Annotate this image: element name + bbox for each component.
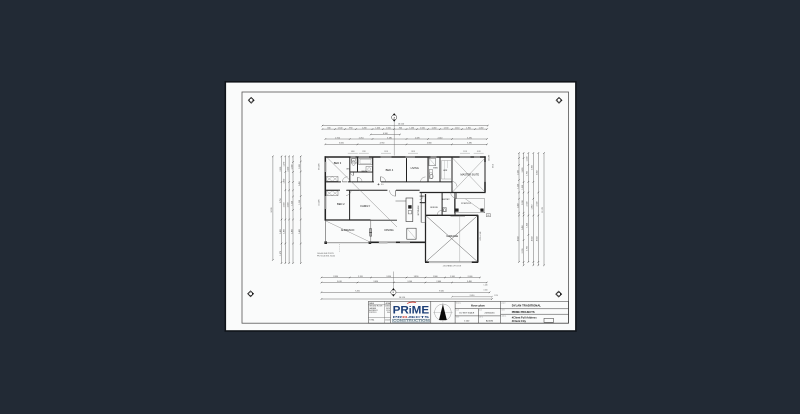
svg-text:1.200: 1.200: [527, 157, 529, 162]
svg-text:CONSTRUCTION: CONSTRUCTION: [393, 320, 429, 323]
svg-text:PRIME PROJECTS: PRIME PROJECTS: [512, 310, 535, 314]
svg-text:2.300: 2.300: [527, 202, 529, 207]
svg-text:GROUND FLOOR: GROUND FLOOR: [369, 306, 383, 308]
svg-text:4.650 x 5.430: 4.650 x 5.430: [480, 231, 482, 240]
svg-text:3.060: 3.060: [339, 143, 344, 145]
svg-text:DINING: DINING: [385, 228, 394, 232]
svg-text:3.140: 3.140: [407, 281, 412, 283]
svg-text:OFFICE: OFFICE: [430, 207, 439, 209]
svg-text:3.950: 3.950: [537, 170, 539, 175]
svg-text:1218: 1218: [362, 151, 366, 153]
svg-text:1818: 1818: [411, 151, 415, 153]
svg-text:2.920: 2.920: [287, 203, 289, 208]
svg-text:3.40: 3.40: [387, 312, 390, 314]
svg-text:0906: 0906: [351, 151, 355, 153]
svg-text:FFL 94.540 NGL 94.240: FFL 94.540 NGL 94.240: [317, 255, 335, 257]
svg-text:FAMILY: FAMILY: [361, 204, 371, 208]
svg-text:7.200: 7.200: [355, 291, 360, 293]
svg-text:4.760: 4.760: [380, 143, 385, 145]
svg-text:.940: .940: [398, 127, 402, 129]
svg-text:0.610: 0.610: [484, 290, 488, 292]
svg-text:3.470: 3.470: [467, 137, 472, 139]
svg-text:1.910: 1.910: [335, 137, 340, 139]
svg-text:4.650: 4.650: [517, 236, 519, 241]
svg-text:16.510: 16.510: [398, 124, 405, 126]
svg-text:1.500: 1.500: [517, 170, 519, 175]
svg-text:1.700: 1.700: [527, 171, 529, 176]
svg-text:MASTER SUITE: MASTER SUITE: [461, 174, 480, 177]
svg-text:ENTRY: ENTRY: [442, 199, 450, 201]
svg-text:1518: 1518: [384, 151, 388, 153]
svg-text:210.05: 210.05: [385, 320, 390, 322]
svg-text:2.700: 2.700: [527, 246, 529, 251]
svg-text:ALFRESCO: ALFRESCO: [341, 229, 355, 232]
svg-text:1.250: 1.250: [517, 184, 519, 189]
svg-text:2.400: 2.400: [280, 229, 282, 234]
svg-text:0918: 0918: [493, 164, 495, 168]
svg-text:LIVING: LIVING: [411, 167, 419, 170]
svg-text:158.35: 158.35: [385, 306, 390, 308]
svg-text:1.230: 1.230: [409, 127, 414, 129]
svg-text:1.050: 1.050: [420, 127, 425, 129]
svg-text:1.960: 1.960: [433, 276, 438, 278]
svg-text:1.970: 1.970: [280, 251, 282, 256]
svg-text:.940: .940: [327, 127, 331, 129]
svg-text:2.410: 2.410: [438, 137, 443, 139]
svg-text:1.250: 1.250: [299, 200, 301, 205]
svg-text:2.400: 2.400: [299, 229, 301, 234]
svg-text:1.000: 1.000: [299, 164, 301, 169]
svg-text:9.100: 9.100: [271, 208, 273, 213]
svg-text:4.650: 4.650: [537, 236, 539, 241]
svg-text:2.400: 2.400: [522, 168, 524, 173]
svg-text:#Client Full Address: #Client Full Address: [512, 315, 538, 319]
svg-text:4.100: 4.100: [383, 133, 388, 135]
svg-text:A01084: A01084: [486, 319, 494, 322]
svg-text:1.100: 1.100: [338, 127, 343, 129]
svg-text:2.300: 2.300: [537, 202, 539, 207]
svg-text:1:100: 1:100: [464, 320, 470, 322]
svg-text:16.510: 16.510: [399, 297, 406, 299]
svg-text:floor plan: floor plan: [471, 304, 485, 308]
svg-text:DO NOT SCALE: DO NOT SCALE: [459, 312, 475, 315]
svg-text:1.450: 1.450: [375, 127, 380, 129]
svg-text:3.610: 3.610: [337, 281, 342, 283]
svg-text:2.200: 2.200: [522, 249, 524, 254]
svg-text:PROJECTS: PROJECTS: [393, 315, 429, 319]
svg-text:2.850: 2.850: [333, 276, 338, 278]
svg-text:job no: job no: [478, 317, 483, 319]
svg-text:2.550: 2.550: [287, 167, 289, 172]
svg-text:2.550: 2.550: [280, 167, 282, 172]
svg-text:1.570: 1.570: [494, 295, 498, 297]
svg-text:GARAGE: GARAGE: [446, 234, 458, 238]
svg-text:3.480: 3.480: [467, 143, 472, 145]
svg-text:2.030: 2.030: [522, 200, 524, 205]
svg-text:2.660: 2.660: [436, 281, 441, 283]
svg-text:3.480: 3.480: [467, 281, 472, 283]
svg-text:23/05/2016: 23/05/2016: [484, 313, 495, 315]
svg-text:BED 4: BED 4: [386, 168, 394, 172]
svg-text:1.110: 1.110: [455, 127, 460, 129]
svg-text:1.050: 1.050: [522, 185, 524, 190]
svg-text:drawing: drawing: [456, 302, 461, 304]
svg-text:1.950: 1.950: [527, 223, 529, 228]
svg-text:scale: scale: [456, 309, 459, 311]
svg-text:0918: 0918: [477, 151, 481, 153]
svg-text:2.450: 2.450: [522, 225, 524, 230]
svg-text:1.130: 1.130: [444, 127, 449, 129]
svg-text:WC: WC: [346, 168, 350, 170]
svg-text:PORTICO: PORTICO: [369, 312, 377, 314]
svg-text:1.410: 1.410: [517, 203, 519, 208]
svg-text:1.680: 1.680: [532, 205, 534, 210]
svg-text:1.240: 1.240: [479, 127, 484, 129]
svg-text:2.400: 2.400: [291, 229, 293, 234]
svg-text:9.620: 9.620: [439, 291, 444, 293]
svg-text:BATH: BATH: [362, 170, 368, 173]
svg-text:1.350: 1.350: [291, 201, 293, 206]
svg-text:3.650: 3.650: [373, 281, 378, 283]
svg-text:1.240: 1.240: [432, 127, 437, 129]
svg-text:2.920: 2.920: [284, 203, 286, 208]
svg-text:4.650: 4.650: [532, 236, 534, 241]
svg-text:2.000: 2.000: [468, 276, 473, 278]
svg-text:36.20: 36.20: [386, 308, 390, 310]
svg-text:BED 2: BED 2: [337, 202, 345, 206]
svg-text:3.750: 3.750: [280, 198, 282, 203]
svg-text:1.440: 1.440: [484, 285, 488, 287]
svg-text:KITCHEN: KITCHEN: [418, 205, 420, 215]
svg-text:BED 3: BED 3: [334, 161, 342, 165]
svg-text:4.800: 4.800: [427, 143, 432, 145]
svg-text:PORTICO: PORTICO: [461, 203, 471, 205]
svg-text:2.400: 2.400: [284, 229, 286, 234]
svg-text:#Client City: #Client City: [512, 319, 527, 323]
svg-text:3.550: 3.550: [386, 276, 391, 278]
svg-text:11.170: 11.170: [542, 207, 544, 213]
svg-text:12.10: 12.10: [386, 310, 390, 312]
svg-text:DYLAN TRADITIONAL: DYLAN TRADITIONAL: [512, 304, 542, 308]
svg-text:address: address: [502, 315, 507, 317]
svg-text:1.570: 1.570: [284, 162, 286, 167]
svg-text:2118: 2118: [463, 151, 467, 153]
svg-text:2.120: 2.120: [358, 276, 363, 278]
svg-text:2.370: 2.370: [415, 137, 420, 139]
svg-text:1.000: 1.000: [291, 165, 293, 170]
svg-text:1.000: 1.000: [386, 127, 391, 129]
svg-text:3.180: 3.180: [387, 137, 392, 139]
svg-text:1.300: 1.300: [466, 127, 471, 129]
svg-text:1.200: 1.200: [362, 127, 367, 129]
svg-text:1.830: 1.830: [284, 179, 286, 184]
svg-text:2.410: 2.410: [470, 295, 475, 297]
svg-text:LDRY: LDRY: [420, 196, 426, 198]
svg-text:1.890: 1.890: [414, 276, 419, 278]
svg-text:2.900: 2.900: [532, 165, 534, 170]
svg-text:1.500: 1.500: [450, 276, 455, 278]
svg-text:.990: .990: [349, 127, 353, 129]
svg-text:ENS: ENS: [433, 168, 438, 170]
svg-text:WIR: WIR: [443, 170, 448, 172]
svg-text:2.710: 2.710: [359, 137, 364, 139]
svg-text:2.450: 2.450: [299, 181, 301, 186]
svg-text:S.D.: S.D.: [381, 184, 385, 186]
